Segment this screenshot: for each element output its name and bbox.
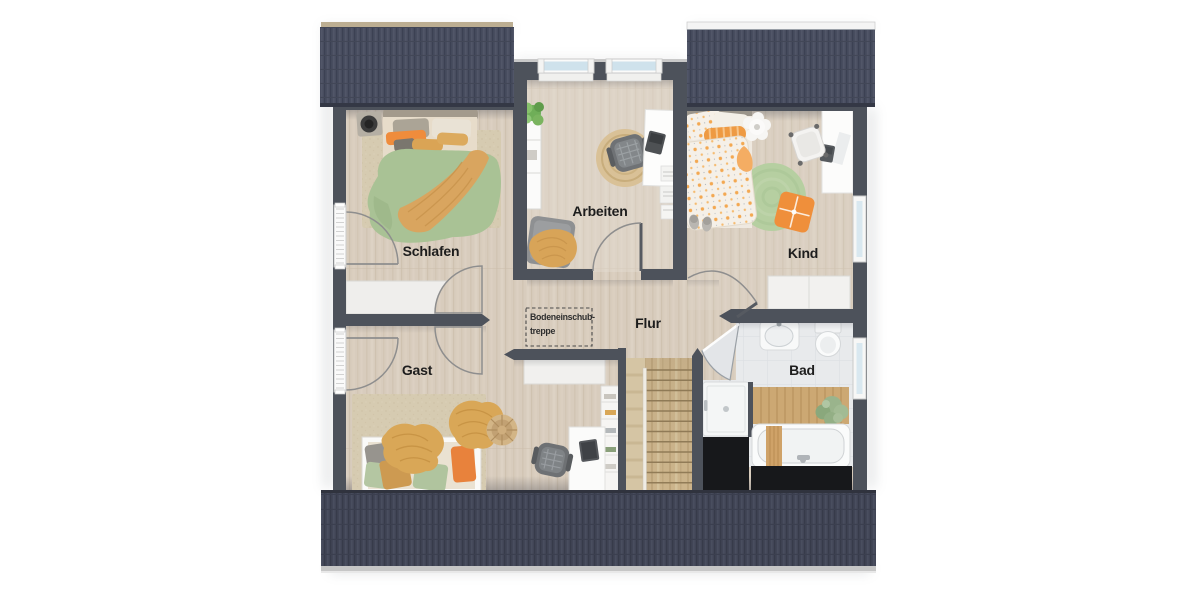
svg-text:Schlafen: Schlafen bbox=[403, 243, 460, 259]
svg-text:Bodeneinschub-: Bodeneinschub- bbox=[530, 312, 595, 322]
svg-text:Gast: Gast bbox=[402, 362, 433, 378]
svg-text:treppe: treppe bbox=[530, 326, 555, 336]
svg-text:Arbeiten: Arbeiten bbox=[572, 203, 627, 219]
svg-text:Bad: Bad bbox=[789, 362, 815, 378]
svg-text:Kind: Kind bbox=[788, 245, 818, 261]
svg-text:Flur: Flur bbox=[635, 315, 661, 331]
